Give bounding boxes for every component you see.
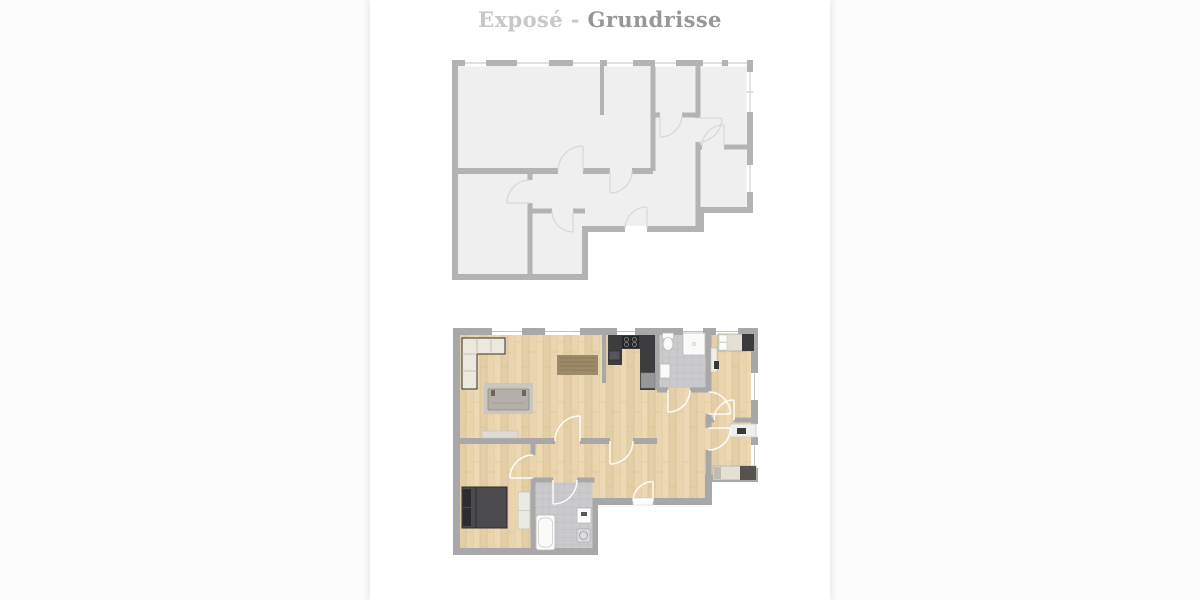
floorplan-schematic-svg: [451, 57, 755, 283]
expose-panel: Exposé - Grundrisse: [370, 0, 830, 600]
title-separator: -: [571, 7, 580, 32]
floorplan-furnished: [452, 327, 760, 557]
stove: [622, 336, 639, 348]
chair: [714, 361, 719, 369]
washing-machine: [577, 529, 590, 542]
shower: [683, 333, 705, 355]
bedroom-bottomleft: [462, 487, 530, 529]
sideboard: [482, 431, 518, 438]
entry-door-gap: [625, 226, 647, 233]
page-background: Exposé - Grundrisse: [0, 0, 1200, 600]
page-title: Exposé - Grundrisse: [370, 0, 830, 33]
floorplan-schematic: [451, 57, 755, 283]
laptop: [737, 428, 746, 434]
living-rug: [484, 383, 533, 414]
entry-door-gap: [633, 498, 653, 505]
title-expose: Exposé: [478, 7, 563, 32]
fridge: [641, 373, 655, 388]
floorplan-furnished-svg: [452, 327, 760, 557]
toilet: [663, 338, 673, 351]
title-grundrisse: Grundrisse: [588, 7, 722, 32]
kitchen-sink: [609, 351, 620, 360]
bathroom-sink: [660, 364, 670, 378]
dining-rug: [557, 355, 598, 375]
